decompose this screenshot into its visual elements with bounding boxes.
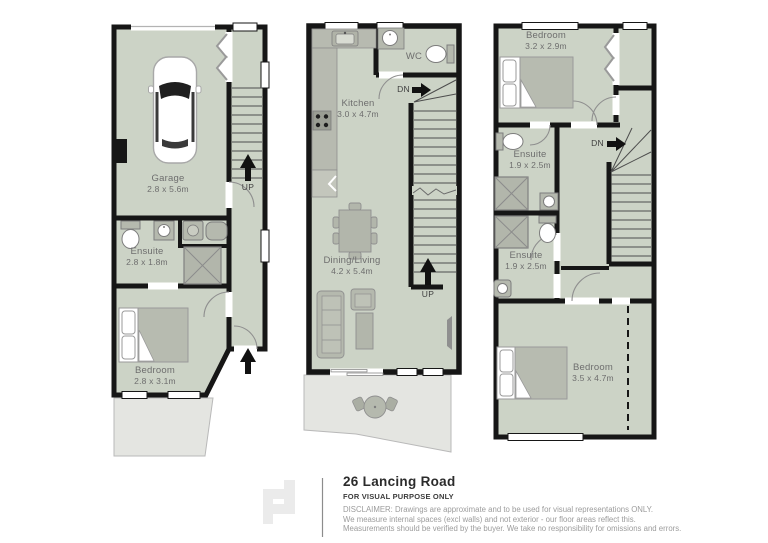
window: [261, 62, 269, 88]
window: [423, 369, 443, 376]
sink-icon: [540, 193, 558, 210]
bed-icon: [500, 57, 573, 108]
toilet-icon: [426, 45, 454, 63]
disclaimer-line-1: DISCLAIMER: Drawings are approximate and…: [343, 505, 681, 515]
window: [397, 369, 417, 376]
window: [261, 230, 269, 262]
window: [122, 392, 147, 399]
window: [233, 23, 257, 31]
floorplan-drawing: [0, 0, 768, 543]
car-icon: [149, 57, 202, 163]
purpose-note: FOR VISUAL PURPOSE ONLY: [343, 492, 681, 501]
toilet-icon: [121, 221, 140, 249]
window: [168, 392, 200, 399]
disclaimer-line-2: We measure internal spaces (excl walls) …: [343, 515, 681, 525]
tv-icon: [447, 316, 452, 350]
stair-label-dn-first: DN: [384, 84, 410, 94]
shower-icon: [495, 177, 528, 210]
shower-icon: [184, 247, 221, 284]
wall-pier: [114, 139, 127, 163]
brand-logo: [263, 480, 295, 524]
dining-table-icon: [333, 203, 377, 259]
armchair-icon: [351, 289, 375, 310]
shower-icon: [495, 216, 528, 248]
footer: 26 Lancing Road FOR VISUAL PURPOSE ONLY …: [343, 474, 681, 534]
window: [508, 434, 583, 441]
toilet-icon: [496, 133, 523, 150]
washer-icon: [183, 221, 203, 240]
floor-plan-ground: [114, 23, 269, 456]
floorplan-page: Garage 2.8 x 5.6m Ensuite 2.8 x 1.8m Bed…: [0, 0, 768, 543]
disclaimer-line-3: Measurements should be verified by the b…: [343, 524, 681, 534]
sink-icon: [494, 280, 511, 297]
sofa-icon: [317, 291, 344, 358]
property-title: 26 Lancing Road: [343, 474, 681, 490]
window: [522, 23, 578, 30]
toilet-icon: [539, 216, 556, 243]
wc-sink-icon: [378, 28, 404, 49]
stair-label-up-first: UP: [417, 289, 439, 299]
kitchen-sink-icon: [332, 31, 358, 46]
coffee-table-icon: [356, 313, 373, 349]
bed-icon: [497, 347, 567, 399]
sink-icon: [154, 221, 174, 240]
floor-plan-second: [494, 23, 654, 441]
window: [325, 23, 358, 30]
cooktop-icon: [313, 111, 331, 130]
stair-label-up-ground: UP: [237, 182, 259, 192]
disclaimer: DISCLAIMER: Drawings are approximate and…: [343, 505, 681, 534]
laundry-tub-icon: [206, 222, 227, 240]
bed-icon: [119, 308, 188, 362]
stair-label-dn-second: DN: [578, 138, 604, 148]
pantry: [312, 170, 337, 197]
floor-plan-first: [304, 23, 459, 453]
window: [623, 23, 647, 30]
patio-ground: [114, 398, 213, 456]
